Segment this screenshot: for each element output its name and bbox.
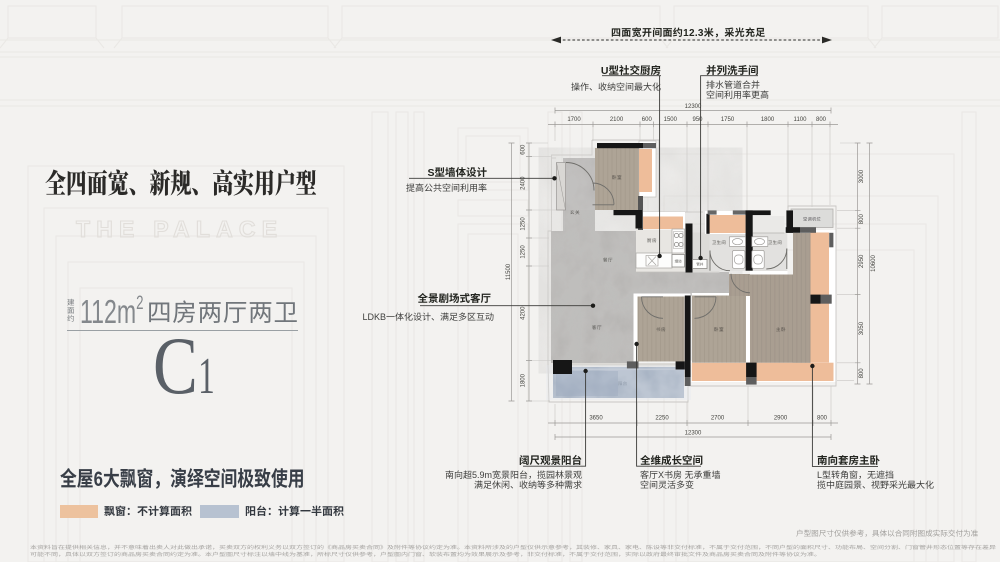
svg-text:卫生间: 卫生间 <box>768 240 782 245</box>
svg-text:12300: 12300 <box>685 431 702 437</box>
svg-text:11500: 11500 <box>506 263 512 280</box>
svg-text:卧室: 卧室 <box>714 327 724 332</box>
svg-text:厨房: 厨房 <box>647 238 657 243</box>
svg-text:客厅: 客厅 <box>592 325 602 330</box>
svg-text:卫生间: 卫生间 <box>712 240 726 245</box>
svg-text:1250: 1250 <box>520 217 526 231</box>
svg-text:10600: 10600 <box>871 254 877 271</box>
svg-text:1250: 1250 <box>520 245 526 259</box>
svg-text:卧室: 卧室 <box>612 175 622 180</box>
svg-text:950: 950 <box>692 117 703 123</box>
svg-text:玄关: 玄关 <box>570 210 580 215</box>
svg-text:管井: 管井 <box>696 262 704 267</box>
svg-text:3050: 3050 <box>859 321 865 335</box>
svg-text:1500: 1500 <box>664 117 678 123</box>
svg-text:800: 800 <box>859 214 865 225</box>
svg-text:3650: 3650 <box>589 416 603 422</box>
svg-text:2250: 2250 <box>655 416 669 422</box>
svg-text:600: 600 <box>520 144 526 155</box>
svg-text:烟道: 烟道 <box>675 259 683 264</box>
svg-text:阳台: 阳台 <box>618 381 628 386</box>
svg-text:书房: 书房 <box>656 327 666 332</box>
svg-text:餐厅: 餐厅 <box>603 258 613 263</box>
svg-text:主卧: 主卧 <box>776 327 786 332</box>
svg-text:1100: 1100 <box>794 117 808 123</box>
svg-text:2700: 2700 <box>711 416 725 422</box>
svg-text:800: 800 <box>816 117 827 123</box>
svg-text:2900: 2900 <box>774 416 788 422</box>
svg-text:2100: 2100 <box>610 117 624 123</box>
svg-text:12300: 12300 <box>685 104 702 110</box>
svg-text:1750: 1750 <box>721 117 735 123</box>
svg-text:800: 800 <box>817 416 828 422</box>
svg-text:空调机位: 空调机位 <box>803 216 821 221</box>
svg-text:3000: 3000 <box>859 169 865 183</box>
svg-text:4200: 4200 <box>520 306 526 320</box>
svg-text:1800: 1800 <box>520 373 526 387</box>
svg-text:1800: 1800 <box>761 117 775 123</box>
svg-text:2950: 2950 <box>859 254 865 268</box>
svg-text:600: 600 <box>642 117 653 123</box>
svg-text:800: 800 <box>859 368 865 379</box>
svg-text:1700: 1700 <box>567 117 581 123</box>
